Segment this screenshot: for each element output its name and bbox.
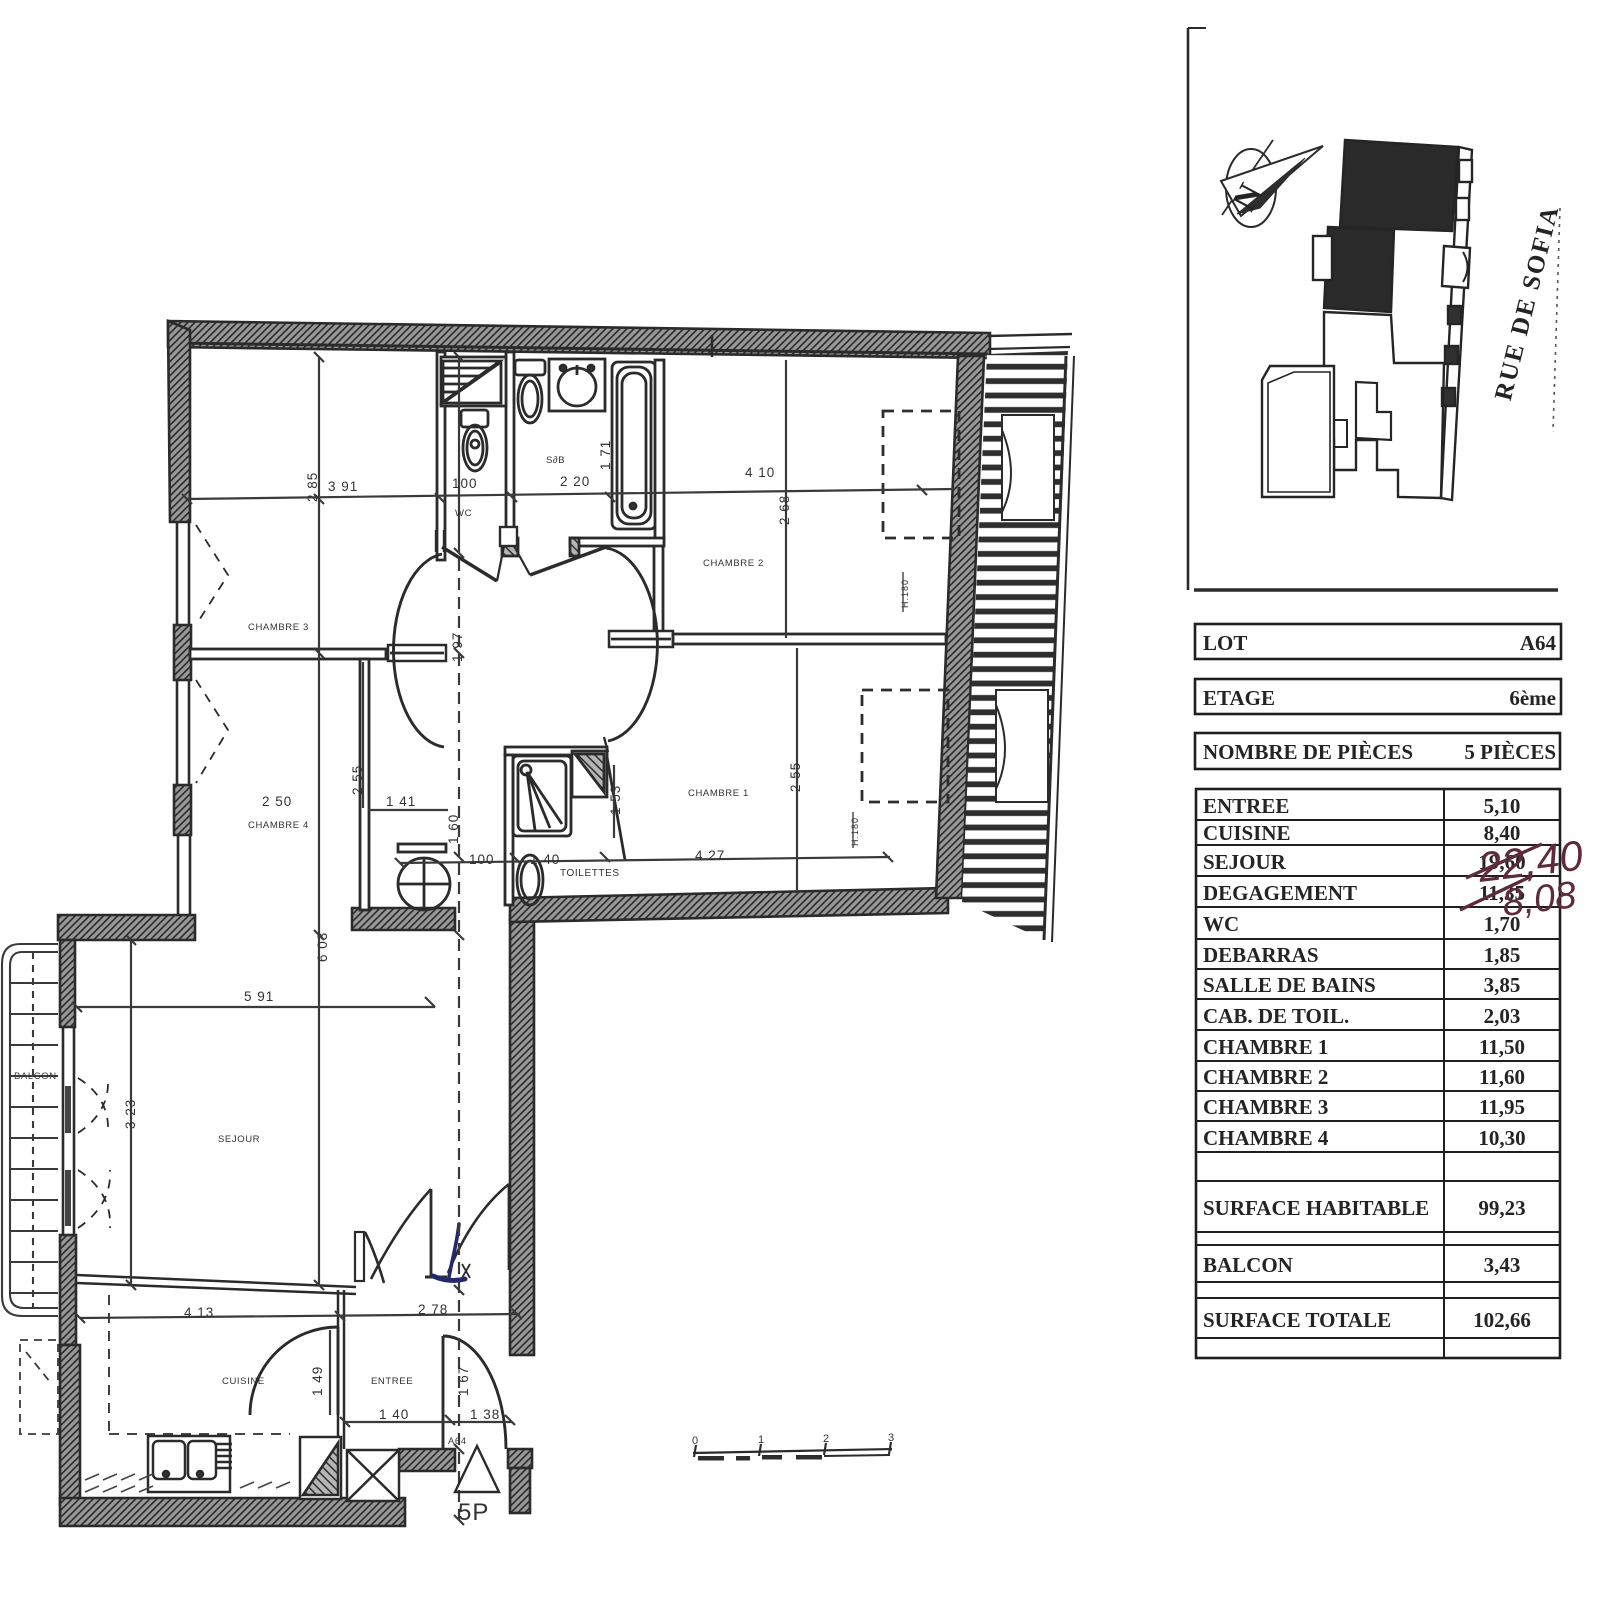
svg-text:1: 1 — [758, 1434, 764, 1446]
svg-text:1 97: 1 97 — [450, 632, 465, 662]
svg-text:100: 100 — [469, 852, 495, 867]
svg-text:102,66: 102,66 — [1473, 1308, 1531, 1332]
svg-text:6 03: 6 03 — [315, 932, 330, 962]
svg-text:NOMBRE DE PIÈCES: NOMBRE DE PIÈCES — [1203, 740, 1413, 764]
svg-text:CHAMBRE 3: CHAMBRE 3 — [248, 622, 309, 633]
svg-text:ENTREE: ENTREE — [371, 1376, 413, 1387]
svg-text:ENTREE: ENTREE — [1203, 794, 1289, 818]
svg-text:CHAMBRE 3: CHAMBRE 3 — [1203, 1095, 1328, 1119]
svg-text:ETAGE: ETAGE — [1203, 686, 1275, 710]
svg-text:5P: 5P — [458, 1499, 489, 1526]
svg-text:1 41: 1 41 — [386, 794, 416, 809]
svg-text:2: 2 — [823, 1433, 829, 1445]
svg-text:WC: WC — [1203, 912, 1239, 936]
svg-text:10,30: 10,30 — [1478, 1126, 1525, 1150]
svg-text:CHAMBRE 4: CHAMBRE 4 — [248, 820, 309, 831]
svg-text:H.180: H.180 — [900, 579, 910, 608]
svg-text:2 20: 2 20 — [560, 474, 590, 489]
svg-text:2 50: 2 50 — [262, 794, 292, 809]
svg-text:100: 100 — [452, 476, 478, 491]
svg-text:1 49: 1 49 — [310, 1366, 325, 1396]
svg-text:DEBARRAS: DEBARRAS — [1203, 943, 1319, 967]
svg-text:1 67: 1 67 — [456, 1366, 471, 1396]
svg-text:5,10: 5,10 — [1484, 794, 1521, 818]
svg-text:3,85: 3,85 — [1484, 973, 1521, 997]
svg-text:LOT: LOT — [1203, 631, 1247, 655]
svg-text:1 60: 1 60 — [446, 814, 461, 844]
svg-text:5 PIÈCES: 5 PIÈCES — [1464, 740, 1556, 764]
svg-text:11,50: 11,50 — [1479, 1035, 1525, 1059]
svg-text:BALCON: BALCON — [1203, 1253, 1293, 1277]
svg-text:CHAMBRE 2: CHAMBRE 2 — [1203, 1065, 1328, 1089]
svg-text:1 53: 1 53 — [608, 785, 623, 815]
svg-text:A64: A64 — [448, 1436, 467, 1447]
svg-text:2 68: 2 68 — [777, 495, 792, 525]
svg-text:99,23: 99,23 — [1478, 1196, 1525, 1220]
svg-text:CHAMBRE 2: CHAMBRE 2 — [703, 558, 764, 569]
svg-text:1,85: 1,85 — [1484, 943, 1521, 967]
svg-text:CUISINE: CUISINE — [222, 1376, 265, 1387]
svg-text:A64: A64 — [1520, 631, 1557, 655]
svg-text:TOILETTES: TOILETTES — [560, 868, 620, 879]
svg-text:1 40: 1 40 — [530, 852, 560, 867]
svg-text:2 55: 2 55 — [350, 765, 365, 795]
svg-text:CAB. DE TOIL.: CAB. DE TOIL. — [1203, 1004, 1349, 1028]
svg-text:2 55: 2 55 — [788, 762, 803, 792]
svg-text:4 27: 4 27 — [695, 848, 725, 863]
svg-text:S∂B: S∂B — [546, 455, 565, 466]
svg-text:CHAMBRE 4: CHAMBRE 4 — [1203, 1126, 1329, 1150]
svg-text:SURFACE TOTALE: SURFACE TOTALE — [1203, 1308, 1391, 1332]
svg-text:1 38: 1 38 — [470, 1407, 500, 1422]
svg-text:WC: WC — [455, 508, 472, 519]
svg-text:3 23: 3 23 — [123, 1099, 138, 1129]
svg-text:SALLE DE BAINS: SALLE DE BAINS — [1203, 973, 1376, 997]
svg-text:SURFACE HABITABLE: SURFACE HABITABLE — [1203, 1196, 1429, 1220]
svg-text:2 78: 2 78 — [418, 1302, 448, 1317]
svg-text:3,43: 3,43 — [1484, 1253, 1521, 1277]
svg-text:3 91: 3 91 — [328, 479, 358, 494]
svg-text:11,60: 11,60 — [1479, 1065, 1525, 1089]
svg-text:SEJOUR: SEJOUR — [1203, 850, 1287, 874]
svg-text:4 13: 4 13 — [184, 1305, 214, 1320]
svg-text:SEJOUR: SEJOUR — [218, 1134, 260, 1145]
svg-text:4 10: 4 10 — [745, 465, 775, 480]
svg-text:1 40: 1 40 — [379, 1407, 409, 1422]
svg-text:1 71: 1 71 — [598, 440, 613, 470]
svg-text:BALCON: BALCON — [14, 1071, 57, 1082]
svg-text:0: 0 — [692, 1435, 698, 1447]
svg-text:11,95: 11,95 — [1479, 1095, 1525, 1119]
svg-text:2,03: 2,03 — [1484, 1004, 1521, 1028]
svg-text:2 85: 2 85 — [305, 472, 320, 502]
svg-text:DEGAGEMENT: DEGAGEMENT — [1203, 881, 1357, 905]
svg-text:3: 3 — [888, 1432, 894, 1444]
svg-text:8,08: 8,08 — [1500, 874, 1579, 925]
svg-text:CUISINE: CUISINE — [1203, 821, 1291, 845]
svg-text:6ème: 6ème — [1509, 686, 1556, 710]
svg-text:CHAMBRE 1: CHAMBRE 1 — [1203, 1035, 1328, 1059]
svg-text:CHAMBRE 1: CHAMBRE 1 — [688, 788, 749, 799]
svg-text:5 91: 5 91 — [244, 989, 274, 1004]
svg-text:H.180: H.180 — [850, 817, 860, 846]
